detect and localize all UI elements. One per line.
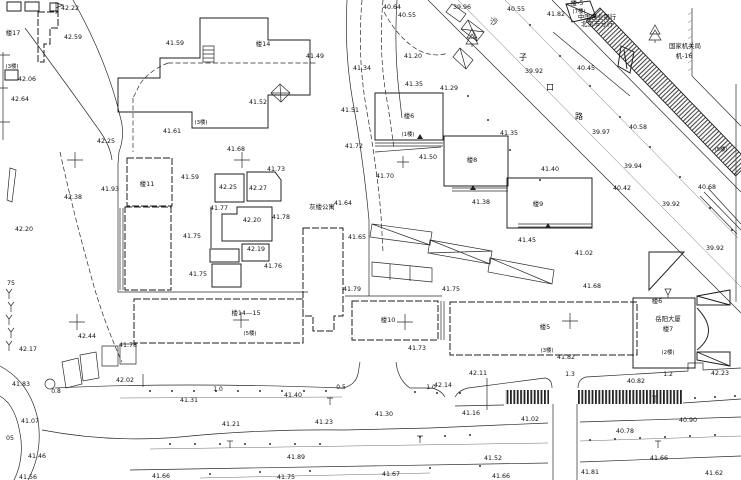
buildings-label: 机-16 <box>676 51 693 60</box>
elevations-label: 41.50 <box>419 154 437 161</box>
elevations-label: 39.96 <box>453 4 471 11</box>
buildings-label: 楼11 <box>140 179 155 188</box>
elevations-label: 41.40 <box>541 166 559 173</box>
street-name-label: 口 <box>546 83 554 92</box>
building-17-outline <box>38 12 58 62</box>
elevations-label: 41.83 <box>12 381 30 388</box>
elevations-label: 41.51 <box>341 107 359 114</box>
elevations-label: 39.92 <box>706 245 724 252</box>
elevations-label: 42.23 <box>711 370 729 377</box>
labels-layer: 42.2242.5942.0642.6441.5942.2541.6141.52… <box>5 0 729 480</box>
elevations-label: 41.34 <box>353 65 371 72</box>
elevations-label: 39.94 <box>624 163 642 170</box>
elevations-label: 42.25 <box>97 138 115 145</box>
buildings-label: 楼10 <box>381 315 396 324</box>
building-9-outline <box>507 178 592 228</box>
elevations-label: 42.06 <box>18 76 36 83</box>
huilou-apartment-outline <box>303 228 343 331</box>
site-plan-canvas: 42.2242.5942.0642.6441.5942.2541.6141.52… <box>0 0 741 480</box>
places-label: 岳阳大厦 <box>655 314 681 323</box>
floors-label: (3楼) <box>540 346 553 354</box>
elevations-label: 41.07 <box>21 418 39 425</box>
shelters <box>446 4 484 69</box>
elevations-label: 41.79 <box>343 286 361 293</box>
elevations-label: 41.20 <box>404 53 422 60</box>
corner-building <box>649 252 684 290</box>
buildings-label: 楼6 <box>652 296 662 305</box>
elevations-label: 05 <box>6 435 14 442</box>
places-label: 国家机关局 <box>669 41 701 50</box>
elevations-label: 41.82 <box>557 354 575 361</box>
shed-row <box>370 224 554 284</box>
elevations-label: 42.02 <box>116 377 134 384</box>
elevations-label: 42.64 <box>11 96 29 103</box>
elevations-label: 41.30 <box>375 411 393 418</box>
elevations-label: 40.55 <box>398 12 416 19</box>
floors-label: (5楼) <box>243 329 256 337</box>
places-label: 灰楼公寓 <box>309 202 335 211</box>
stair-symbol <box>203 46 214 62</box>
elevations-label: 40.64 <box>383 4 401 11</box>
floors-label: (3楼) <box>5 62 18 70</box>
elevations-label: 42.25 <box>219 184 237 191</box>
elevations-label: 41.75 <box>183 233 201 240</box>
zebra-crossing <box>578 390 683 404</box>
elevations-label: 42.20 <box>243 217 261 224</box>
buildings-layer <box>5 1 730 388</box>
floors-label: (1楼) <box>401 130 414 138</box>
elevations-label: 41.82 <box>547 11 565 18</box>
elevations-label: 41.78 <box>119 342 137 349</box>
buildings-label: 楼7 <box>663 324 673 333</box>
elevations-label: 41.70 <box>376 173 394 180</box>
entrance-arrow <box>417 134 551 228</box>
buildings-label: 楼-5 <box>571 0 584 7</box>
buildings-label: 楼9 <box>533 199 543 208</box>
elevations-label: 41.52 <box>484 455 502 462</box>
elevations-label: 41.02 <box>575 250 593 257</box>
road-widths-label: 0.8 <box>51 388 61 395</box>
site-plan-page: 42.2242.5942.0642.6441.5942.2541.6141.52… <box>0 0 741 480</box>
elevations-label: 41.64 <box>334 200 352 207</box>
elevations-label: 41.65 <box>348 234 366 241</box>
building-14-outline <box>118 18 310 128</box>
elevations-label: 41.89 <box>287 454 305 461</box>
road-widths-label: 1.2 <box>663 371 673 378</box>
street-name-label: 路 <box>575 111 583 121</box>
elevations-label: 41.93 <box>101 186 119 193</box>
elevations-label: 41.77 <box>210 205 228 212</box>
street-name-label: 子 <box>519 53 527 62</box>
elevations-label: 40.68 <box>698 184 716 191</box>
elevations-label: 41.40 <box>284 392 302 399</box>
elevations-label: 41.52 <box>249 99 267 106</box>
elevations-label: 41.61 <box>163 128 181 135</box>
elevations-label: 41.67 <box>382 471 400 478</box>
elevations-label: 42.22 <box>61 5 79 12</box>
elevations-label: 41.35 <box>500 130 518 137</box>
corner-houses <box>7 168 136 388</box>
elevations-label: 41.76 <box>264 263 282 270</box>
elevations-label: 41.31 <box>180 397 198 404</box>
places-label: 北京市分行 <box>581 19 614 28</box>
elevations-label: 40.82 <box>627 378 645 385</box>
elevations-label: 41.49 <box>306 53 324 60</box>
building-11-outline <box>125 158 172 290</box>
elevations-label: 41.38 <box>472 199 490 206</box>
elevations-label: 41.59 <box>181 174 199 181</box>
elevations-label: 41.66 <box>152 473 170 480</box>
elevations-label: 40.58 <box>629 124 647 131</box>
building-14-15-outline <box>134 299 303 343</box>
yueyang-tower-outline <box>633 290 730 368</box>
tree-symbols <box>6 289 14 351</box>
elevations-label: 39.97 <box>592 129 610 136</box>
elevations-label: 41.78 <box>272 214 290 221</box>
elevations-label: 41.45 <box>518 237 536 244</box>
grid-cross <box>67 152 578 330</box>
elevations-label: 42.59 <box>64 34 82 41</box>
elevations-label: 41.59 <box>166 40 184 47</box>
elevations-label: 42.27 <box>249 185 267 192</box>
elevations-label: 41.66 <box>492 473 510 480</box>
buildings-label: 楼17 <box>6 28 21 37</box>
elevations-label: 41.72 <box>345 143 363 150</box>
elevations-label: 75 <box>7 280 15 287</box>
elevations-label: 42.19 <box>247 246 265 253</box>
road-widths-label: 1.3 <box>565 371 575 378</box>
elevations-label: 42.11 <box>469 370 487 377</box>
elevations-label: 41.73 <box>408 345 426 352</box>
kiosk <box>271 84 290 102</box>
elevations-label: 41.21 <box>222 421 240 428</box>
tree-dots <box>150 25 735 474</box>
elevations-label: 41.46 <box>28 453 46 460</box>
elevations-label: 41.29 <box>440 85 458 92</box>
elevations-label: 42.14 <box>434 382 452 389</box>
elevations-label: 42.20 <box>15 226 33 233</box>
elevations-label: 40.45 <box>577 65 595 72</box>
elevations-label: 41.66 <box>650 455 668 462</box>
elevations-label: 41.73 <box>267 166 285 173</box>
elevations-label: 40.42 <box>613 185 631 192</box>
elevations-label: 41.56 <box>19 474 37 480</box>
street-name-label: 沙 <box>490 17 498 26</box>
elevations-label: 41.68 <box>227 146 245 153</box>
buildings-label: 楼14 <box>256 39 271 48</box>
zebra-crossing <box>505 390 549 404</box>
benchmark-icon <box>665 289 671 298</box>
buildings-label: 楼6 <box>404 111 414 120</box>
buildings-label: 楼5 <box>540 322 550 331</box>
elevations-label: 41.23 <box>315 419 333 426</box>
elevations-label: 41.75 <box>277 474 295 480</box>
elevations-label: 41.62 <box>705 470 723 477</box>
elevations-label: 41.75 <box>442 286 460 293</box>
elevations-label: 39.92 <box>525 68 543 75</box>
buildings-label: 楼8 <box>467 155 477 164</box>
elevations-label: 42.44 <box>78 333 96 340</box>
elevations-label: 42.38 <box>64 194 82 201</box>
elevations-label: 41.16 <box>462 410 480 417</box>
elevations-label: 41.75 <box>189 271 207 278</box>
elevations-label: 40.78 <box>616 428 634 435</box>
crossings-layer <box>505 390 683 404</box>
road-widths-label: 1.0 <box>213 386 223 393</box>
elevations-label: 39.92 <box>662 201 680 208</box>
elevations-label: 40.55 <box>507 6 525 13</box>
elevations-label: 41.81 <box>581 469 599 476</box>
elevations-label: 41.35 <box>405 81 423 88</box>
elevations-label: 40.90 <box>679 417 697 424</box>
elevations-label: 41.68 <box>583 283 601 290</box>
floors-label: (5楼) <box>714 145 727 153</box>
elevations-label: 41.02 <box>521 416 539 423</box>
road-widths-label: 1.0 <box>426 384 436 391</box>
buildings-label: 楼14—15 <box>231 308 260 317</box>
floors-label: (2楼) <box>661 348 674 356</box>
road-widths-label: 0.5 <box>336 384 346 391</box>
elevations-label: 42.17 <box>19 346 37 353</box>
floors-label: (3楼) <box>194 118 207 126</box>
